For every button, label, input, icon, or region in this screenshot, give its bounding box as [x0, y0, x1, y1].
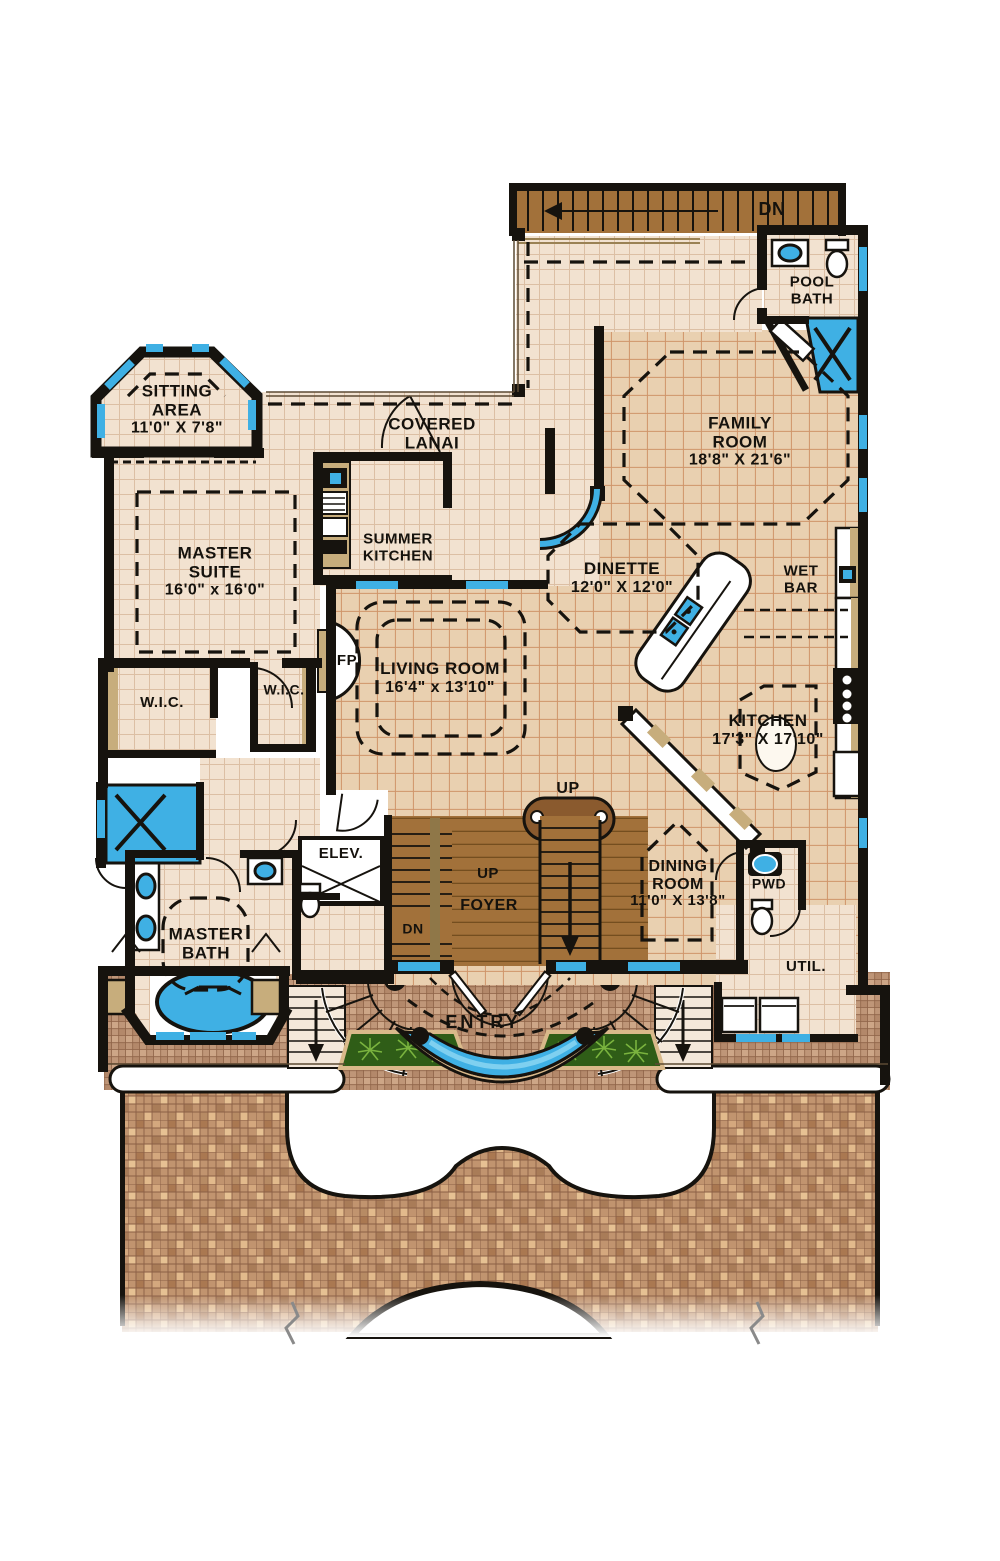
terrace-steps-right — [655, 986, 712, 1068]
driveway — [118, 1080, 884, 1344]
room-name: MASTER SUITE — [178, 544, 253, 582]
label-entry: ENTRY — [445, 1013, 520, 1033]
label-summer-kitchen: SUMMER KITCHEN — [348, 532, 448, 565]
dryer — [760, 998, 798, 1032]
bath-sink — [137, 916, 155, 940]
newel-post — [576, 1027, 594, 1045]
wet-bar-sink — [843, 570, 852, 579]
label-elevator: ELEV. — [319, 846, 363, 863]
floor-plan-drawing — [0, 0, 1000, 1561]
room-name: W.I.C. — [140, 694, 184, 711]
stair-direction: DN — [402, 920, 423, 936]
room-name: WET BAR — [784, 563, 819, 597]
room-name: ELEV. — [319, 845, 363, 862]
room-name: W.I.C. — [263, 681, 304, 697]
stair-direction: UP — [477, 865, 499, 882]
room-dims: 16'4" x 13'10" — [345, 679, 535, 697]
label-dn-top: DN — [759, 200, 786, 220]
room-dims: 12'0" X 12'0" — [537, 579, 707, 597]
room-name: DINETTE — [584, 559, 660, 578]
room-name: DINING ROOM — [649, 858, 708, 893]
room-name: FP — [337, 652, 357, 669]
room-dims: 11'0" X 7'8" — [129, 420, 225, 438]
label-up-foyer: UP — [477, 866, 499, 883]
label-powder: PWD — [752, 876, 786, 891]
label-sitting-area: SITTING AREA 11'0" X 7'8" — [129, 383, 225, 438]
stair-direction: DN — [759, 199, 786, 219]
label-fireplace: FP — [337, 653, 357, 670]
label-dinette: DINETTE 12'0" X 12'0" — [537, 560, 707, 596]
room-name: POOL BATH — [790, 274, 835, 308]
newel-post — [411, 1027, 429, 1045]
label-family-room: FAMILY ROOM 18'8" X 21'6" — [685, 415, 795, 470]
pwd-sink — [753, 855, 777, 873]
label-utility: UTIL. — [786, 959, 826, 976]
room-name: MASTER BATH — [169, 924, 244, 962]
label-master-bath: MASTER BATH — [156, 925, 256, 962]
room-dims: 17'3" X 17'10" — [688, 731, 848, 749]
label-foyer: FOYER — [460, 897, 518, 915]
refrigerator — [834, 752, 860, 796]
washer — [722, 998, 756, 1032]
pool-bath-sink — [779, 245, 801, 261]
room-name: UTIL. — [786, 958, 826, 975]
stair-direction: UP — [556, 780, 579, 797]
label-wet-bar: WET BAR — [776, 564, 826, 597]
label-wic-left: W.I.C. — [140, 695, 184, 712]
label-living-room: LIVING ROOM 16'4" x 13'10" — [345, 660, 535, 696]
bath-sink — [137, 874, 155, 898]
room-name: FOYER — [460, 897, 518, 914]
label-kitchen: KITCHEN 17'3" X 17'10" — [688, 712, 848, 748]
label-wic-right: W.I.C. — [263, 682, 304, 697]
room-name: PWD — [752, 875, 786, 891]
label-dining-room: DINING ROOM 11'0" X 13'8" — [628, 858, 728, 910]
room-name: SUMMER KITCHEN — [363, 531, 433, 565]
label-up-stair: UP — [556, 780, 579, 798]
room-name: SITTING AREA — [142, 382, 213, 420]
room-dims: 16'0" x 16'0" — [160, 582, 270, 600]
room-name: ENTRY — [445, 1012, 520, 1032]
stair-foyer-down — [392, 822, 452, 966]
room-name: COVERED LANAI — [388, 414, 476, 452]
room-name: FAMILY ROOM — [708, 414, 772, 452]
room-name: KITCHEN — [728, 711, 807, 730]
room-dims: 11'0" X 13'8" — [628, 893, 728, 910]
room-name: LIVING ROOM — [380, 659, 500, 678]
label-dn-foyer: DN — [402, 921, 423, 936]
label-covered-lanai: COVERED LANAI — [372, 415, 492, 452]
label-master-suite: MASTER SUITE 16'0" x 16'0" — [160, 545, 270, 600]
pwd-toilet — [752, 908, 772, 934]
floor-plan: SITTING AREA 11'0" X 7'8" MASTER SUITE 1… — [0, 0, 1000, 1561]
room-dims: 18'8" X 21'6" — [685, 452, 795, 470]
label-pool-bath: POOL BATH — [777, 275, 847, 308]
